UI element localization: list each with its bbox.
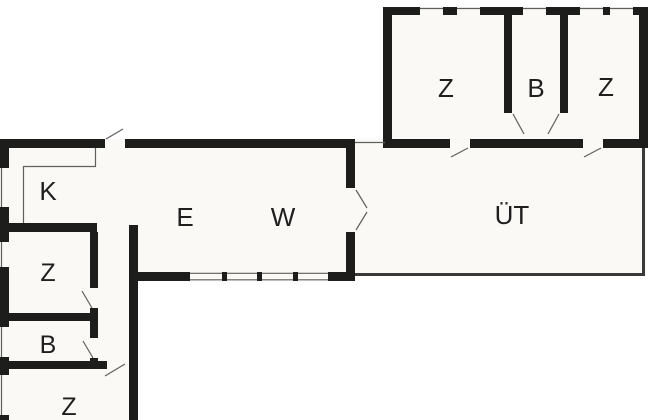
wall-segment <box>129 272 190 281</box>
wall-segment <box>0 139 105 148</box>
wall-segment <box>125 139 355 148</box>
terrace-edge-right <box>642 148 645 276</box>
wall-segment <box>0 415 9 420</box>
wall-segment <box>383 7 420 15</box>
wall-segment <box>90 232 98 288</box>
wall-segment <box>129 225 138 420</box>
wall-segment <box>603 7 610 15</box>
room-label-b-north: B <box>527 73 544 103</box>
wall-segment <box>470 139 583 148</box>
wall-segment <box>222 272 227 281</box>
wall-segment <box>90 358 98 369</box>
room-label-b-west: B <box>40 331 57 359</box>
terrace-edge-bottom <box>355 273 645 276</box>
wall-segment <box>383 7 392 148</box>
wall-segment <box>257 272 262 281</box>
wall-segment <box>504 15 512 113</box>
wall-segment <box>0 223 97 232</box>
room-label-k: K <box>39 176 57 206</box>
room-label-w: W <box>271 202 296 232</box>
wall-segment <box>328 272 355 281</box>
wall-segment <box>480 7 523 15</box>
wall-segment <box>0 313 97 321</box>
floor-plan-drawing: K E W Z B Z Z B Z ÜT <box>0 0 650 420</box>
wall-segment <box>639 7 648 148</box>
wall-segment <box>385 139 450 148</box>
wall-segment <box>443 7 457 15</box>
room-label-z-west-upper: Z <box>40 259 55 287</box>
wall-segment <box>633 7 648 15</box>
wall-segment <box>0 139 9 168</box>
wall-segment <box>346 148 355 188</box>
room-label-z-north-left: Z <box>438 73 454 103</box>
room-label-z-north-right: Z <box>598 72 614 102</box>
room-label-z-west-lower: Z <box>61 393 76 420</box>
floor-plan-page: K E W Z B Z Z B Z ÜT <box>0 0 650 420</box>
wall-segment <box>560 15 568 113</box>
wall-segment <box>90 308 98 338</box>
room-label-e: E <box>176 202 193 232</box>
wall-segment <box>293 272 298 281</box>
wall-segment <box>546 7 580 15</box>
room-label-ut-terrace: ÜT <box>495 200 530 230</box>
